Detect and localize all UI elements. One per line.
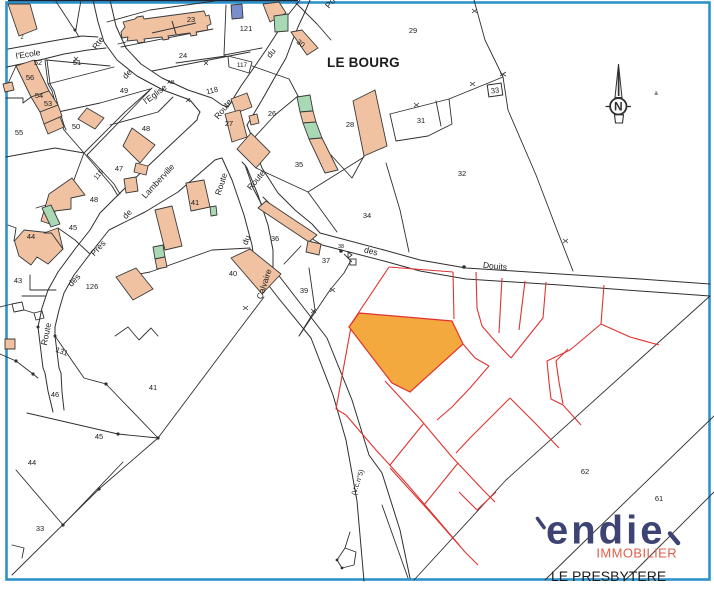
svg-text:126: 126 [86, 282, 99, 291]
svg-text:28: 28 [346, 120, 354, 129]
svg-text:46: 46 [51, 390, 59, 399]
svg-text:27: 27 [225, 119, 233, 128]
svg-text:40: 40 [229, 269, 237, 278]
svg-text:48: 48 [90, 195, 98, 204]
svg-text:56: 56 [26, 73, 34, 82]
svg-text:121: 121 [240, 24, 253, 33]
svg-text:48: 48 [142, 124, 150, 133]
svg-text:36: 36 [271, 234, 279, 243]
svg-text:43: 43 [14, 276, 22, 285]
svg-text:49: 49 [120, 86, 128, 95]
svg-text:AB: AB [167, 80, 175, 86]
svg-text:35: 35 [295, 160, 303, 169]
svg-text:38: 38 [338, 244, 344, 250]
svg-text:44: 44 [28, 458, 36, 467]
svg-text:52: 52 [34, 58, 42, 67]
svg-text:41: 41 [191, 198, 199, 207]
svg-text:47: 47 [115, 164, 123, 173]
svg-text:62: 62 [581, 467, 589, 476]
svg-text:41: 41 [149, 383, 157, 392]
svg-text:IMMOBILIER: IMMOBILIER [596, 546, 677, 561]
svg-text:31: 31 [417, 116, 425, 125]
svg-text:39: 39 [300, 286, 308, 295]
svg-text:53: 53 [44, 99, 52, 108]
svg-text:26: 26 [268, 109, 276, 118]
svg-text:23: 23 [187, 15, 195, 24]
svg-text:32: 32 [458, 169, 466, 178]
svg-text:61: 61 [655, 494, 663, 503]
svg-text:51: 51 [73, 58, 81, 67]
svg-text:55: 55 [15, 128, 23, 137]
svg-text:24: 24 [179, 51, 187, 60]
svg-text:44: 44 [27, 232, 35, 241]
svg-text:54: 54 [35, 91, 43, 100]
svg-text:33: 33 [36, 524, 44, 533]
svg-text:50: 50 [72, 122, 80, 131]
svg-text:45: 45 [69, 223, 77, 232]
svg-text:45: 45 [95, 432, 103, 441]
svg-text:N: N [614, 100, 623, 114]
svg-text:33: 33 [490, 85, 500, 95]
svg-text:34: 34 [363, 211, 371, 220]
svg-text:37: 37 [322, 256, 330, 265]
svg-text:LE BOURG: LE BOURG [327, 55, 400, 70]
svg-text:29: 29 [409, 26, 417, 35]
svg-text:117: 117 [237, 62, 248, 69]
svg-text:LE PRESBYTERE: LE PRESBYTERE [551, 568, 666, 584]
